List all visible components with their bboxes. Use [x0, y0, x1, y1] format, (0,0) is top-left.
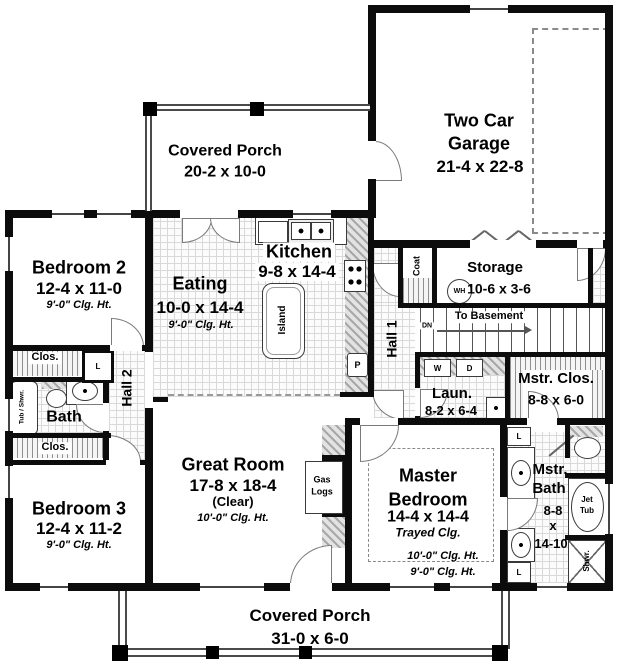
master-name-2: Bedroom	[388, 491, 467, 510]
wall-storage-east	[588, 248, 593, 303]
toilet-nook-shelf	[570, 426, 603, 437]
master-sink-1	[511, 460, 531, 486]
master-ceiling-1: 10'-0" Clg. Ht.	[407, 551, 478, 563]
bedroom3-closet-label: Clos.	[39, 442, 72, 454]
window	[470, 5, 508, 13]
coat-closet-hatch	[403, 278, 432, 303]
master-bath-door-opening	[500, 497, 507, 530]
eating-dims: 10-0 x 14-4	[157, 299, 244, 317]
kitchen-greatroom-ceiling-break	[168, 394, 340, 396]
master-closet-door-opening	[527, 418, 557, 425]
bottom-porch-rail-west	[118, 591, 127, 649]
wall-greatroom-east	[345, 425, 352, 583]
master-sink-2	[511, 532, 531, 558]
hall1-label: Hall 1	[385, 320, 400, 357]
wall-jettub-north	[565, 473, 605, 478]
linen-master-bottom: L	[507, 562, 531, 583]
master-bath-dim-2: x	[549, 519, 556, 533]
window	[40, 583, 68, 591]
greatroom-ceiling: 10'-0" Clg. Ht.	[197, 513, 268, 525]
linen-master-top: L	[507, 427, 531, 446]
window	[293, 210, 331, 218]
garage-door-opening	[368, 141, 376, 179]
bottom-porch-rail-east	[501, 591, 510, 649]
master-ceiling-2: 9'-0" Clg. Ht.	[410, 567, 475, 579]
linen-label: L	[96, 362, 101, 371]
window	[605, 484, 613, 534]
master-closet-hatch-right	[592, 370, 605, 418]
bedroom2-door-opening	[110, 345, 142, 351]
range-cooktop	[344, 260, 366, 292]
window	[390, 583, 434, 591]
pantry-label: P	[354, 360, 360, 370]
kitchen-name: Kitchen	[263, 243, 335, 262]
tub-shower-label: Tub / Shwr.	[20, 390, 27, 424]
stairs-arrowhead	[525, 326, 532, 334]
bath-name: Bath	[46, 410, 82, 427]
chimney-hatch-bottom	[322, 517, 346, 548]
hall2-opening	[145, 352, 153, 408]
gas-logs-label-2: Logs	[311, 487, 333, 496]
garage-name-1: Two Car	[444, 112, 514, 131]
master-bath-name-1: Mstr.	[532, 462, 567, 478]
master-bath-name-2: Bath	[532, 481, 565, 497]
master-tray-label: Trayed Clg.	[395, 527, 460, 540]
eating-name: Eating	[172, 275, 227, 294]
kitchen-dims: 9-8 x 14-4	[255, 263, 339, 281]
bedroom3-name: Bedroom 3	[32, 500, 126, 519]
bifold-opening	[470, 240, 536, 248]
floor-plan: P WH W D L L	[0, 0, 619, 664]
greatroom-name: Great Room	[181, 456, 284, 475]
window	[97, 210, 131, 218]
bedroom3-dims: 12-4 x 11-2	[36, 520, 122, 538]
french-door-opening	[180, 210, 238, 218]
bath-sink	[72, 381, 98, 401]
dryer: D	[456, 359, 483, 377]
wall-garage-west	[368, 5, 376, 218]
laundry-name: Laun.	[432, 386, 472, 402]
wall-toilet-nook	[565, 425, 570, 458]
bedroom2-name: Bedroom 2	[32, 259, 126, 278]
wall-kitchen-east	[368, 217, 374, 397]
stairs-dn-label: DN	[419, 322, 435, 329]
garage-dims: 21-4 x 22-8	[437, 158, 524, 176]
garage-name-2: Garage	[448, 135, 510, 154]
porch-bottom-dims: 31-0 x 6-0	[271, 630, 349, 648]
washer-label: W	[434, 364, 442, 373]
washer: W	[424, 359, 451, 377]
storage-dims: 10-6 x 3-6	[467, 282, 531, 297]
storage-name: Storage	[467, 260, 523, 276]
wall-coat-east	[432, 248, 437, 306]
bedroom3-door-opening	[106, 460, 140, 465]
dryer-label: D	[467, 364, 473, 373]
laundry-door-opening	[415, 388, 420, 416]
master-bath-dim-3: 14-10	[534, 537, 567, 551]
porch-top-name: Covered Porch	[168, 144, 282, 161]
bedroom2-ceiling: 9'-0" Clg. Ht.	[46, 300, 111, 312]
wall-tub-shower-divider	[565, 535, 605, 540]
coat-label: Coat	[412, 256, 421, 276]
master-toilet	[574, 437, 601, 459]
master-closet-hatch-top	[510, 357, 605, 370]
master-door-opening	[360, 418, 398, 425]
hall2-label: Hall 2	[120, 369, 135, 406]
porch-post	[250, 102, 264, 116]
bath-door-opening	[103, 403, 109, 431]
porch-bottom-name: Covered Porch	[250, 607, 371, 625]
bedroom2-dims: 12-4 x 11-0	[36, 280, 122, 298]
wall-greatroom-stub	[152, 397, 168, 402]
gas-logs-label-1: Gas	[313, 475, 330, 484]
porch-post	[112, 645, 128, 661]
island-label: Island	[278, 306, 289, 335]
wall-stairs-south	[415, 352, 612, 357]
master-dims: 14-4 x 14-4	[387, 510, 469, 527]
jet-tub-label-2: Tub	[580, 507, 594, 515]
window	[537, 583, 567, 591]
linen-hall: L	[82, 350, 114, 383]
wall-laundry-closet-divider	[505, 352, 510, 425]
window	[5, 466, 13, 498]
kitchen-sink-basin-right	[311, 222, 331, 240]
chimney-hatch-top	[322, 425, 346, 455]
master-closet-name: Mstr. Clos.	[518, 371, 594, 387]
water-heater-label: WH	[454, 288, 466, 295]
stairs-direction-line	[437, 330, 525, 332]
window	[5, 399, 13, 431]
linen-label: L	[517, 432, 522, 441]
master-bath-dim-1: 8-8	[544, 504, 563, 518]
door-arc-bedroom2	[111, 318, 144, 347]
door-arc-garage-entry	[375, 141, 402, 181]
bedroom3-ceiling: 9'-0" Clg. Ht.	[46, 540, 111, 552]
stairs-label: To Basement	[452, 311, 526, 323]
wall-stairs-north	[398, 303, 612, 308]
porch-post	[492, 645, 508, 661]
door-arc-front-entry	[290, 545, 332, 585]
pantry-cabinet: P	[347, 353, 368, 377]
laundry-dims: 8-2 x 6-4	[425, 404, 477, 418]
bottom-porch-rail-south	[118, 648, 506, 657]
window	[52, 210, 84, 218]
garage-rear-opening	[577, 240, 603, 248]
porch-post	[206, 646, 219, 659]
master-closet-dims: 8-8 x 6-0	[528, 393, 584, 408]
front-door-opening	[290, 583, 332, 591]
toilet-bowl	[46, 389, 67, 408]
jet-tub-label-1: Jet	[581, 496, 593, 504]
dishwasher	[258, 221, 288, 243]
porch-top-dims: 20-2 x 10-0	[184, 165, 266, 182]
master-name-1: Master	[399, 467, 457, 486]
top-porch-rail-west	[145, 104, 152, 211]
greatroom-dims: 17-8 x 18-4	[190, 477, 277, 495]
wall-coat-west	[398, 248, 403, 306]
linen-label: L	[517, 568, 522, 577]
wall-pantry-south	[340, 392, 374, 397]
porch-post	[143, 102, 157, 116]
window	[450, 583, 492, 591]
eating-ceiling: 9'-0" Clg. Ht.	[168, 320, 233, 332]
window	[200, 583, 264, 591]
kitchen-sink-basin-left	[291, 222, 311, 240]
garage-parking-pad-dashed	[532, 28, 609, 234]
wall-bath-south	[5, 433, 111, 438]
bedroom2-closet-label: Clos.	[29, 352, 62, 364]
utility-sink	[486, 397, 507, 420]
window	[5, 237, 13, 271]
greatroom-clear: (Clear)	[212, 495, 253, 509]
shower-label: Shwr.	[583, 550, 591, 571]
